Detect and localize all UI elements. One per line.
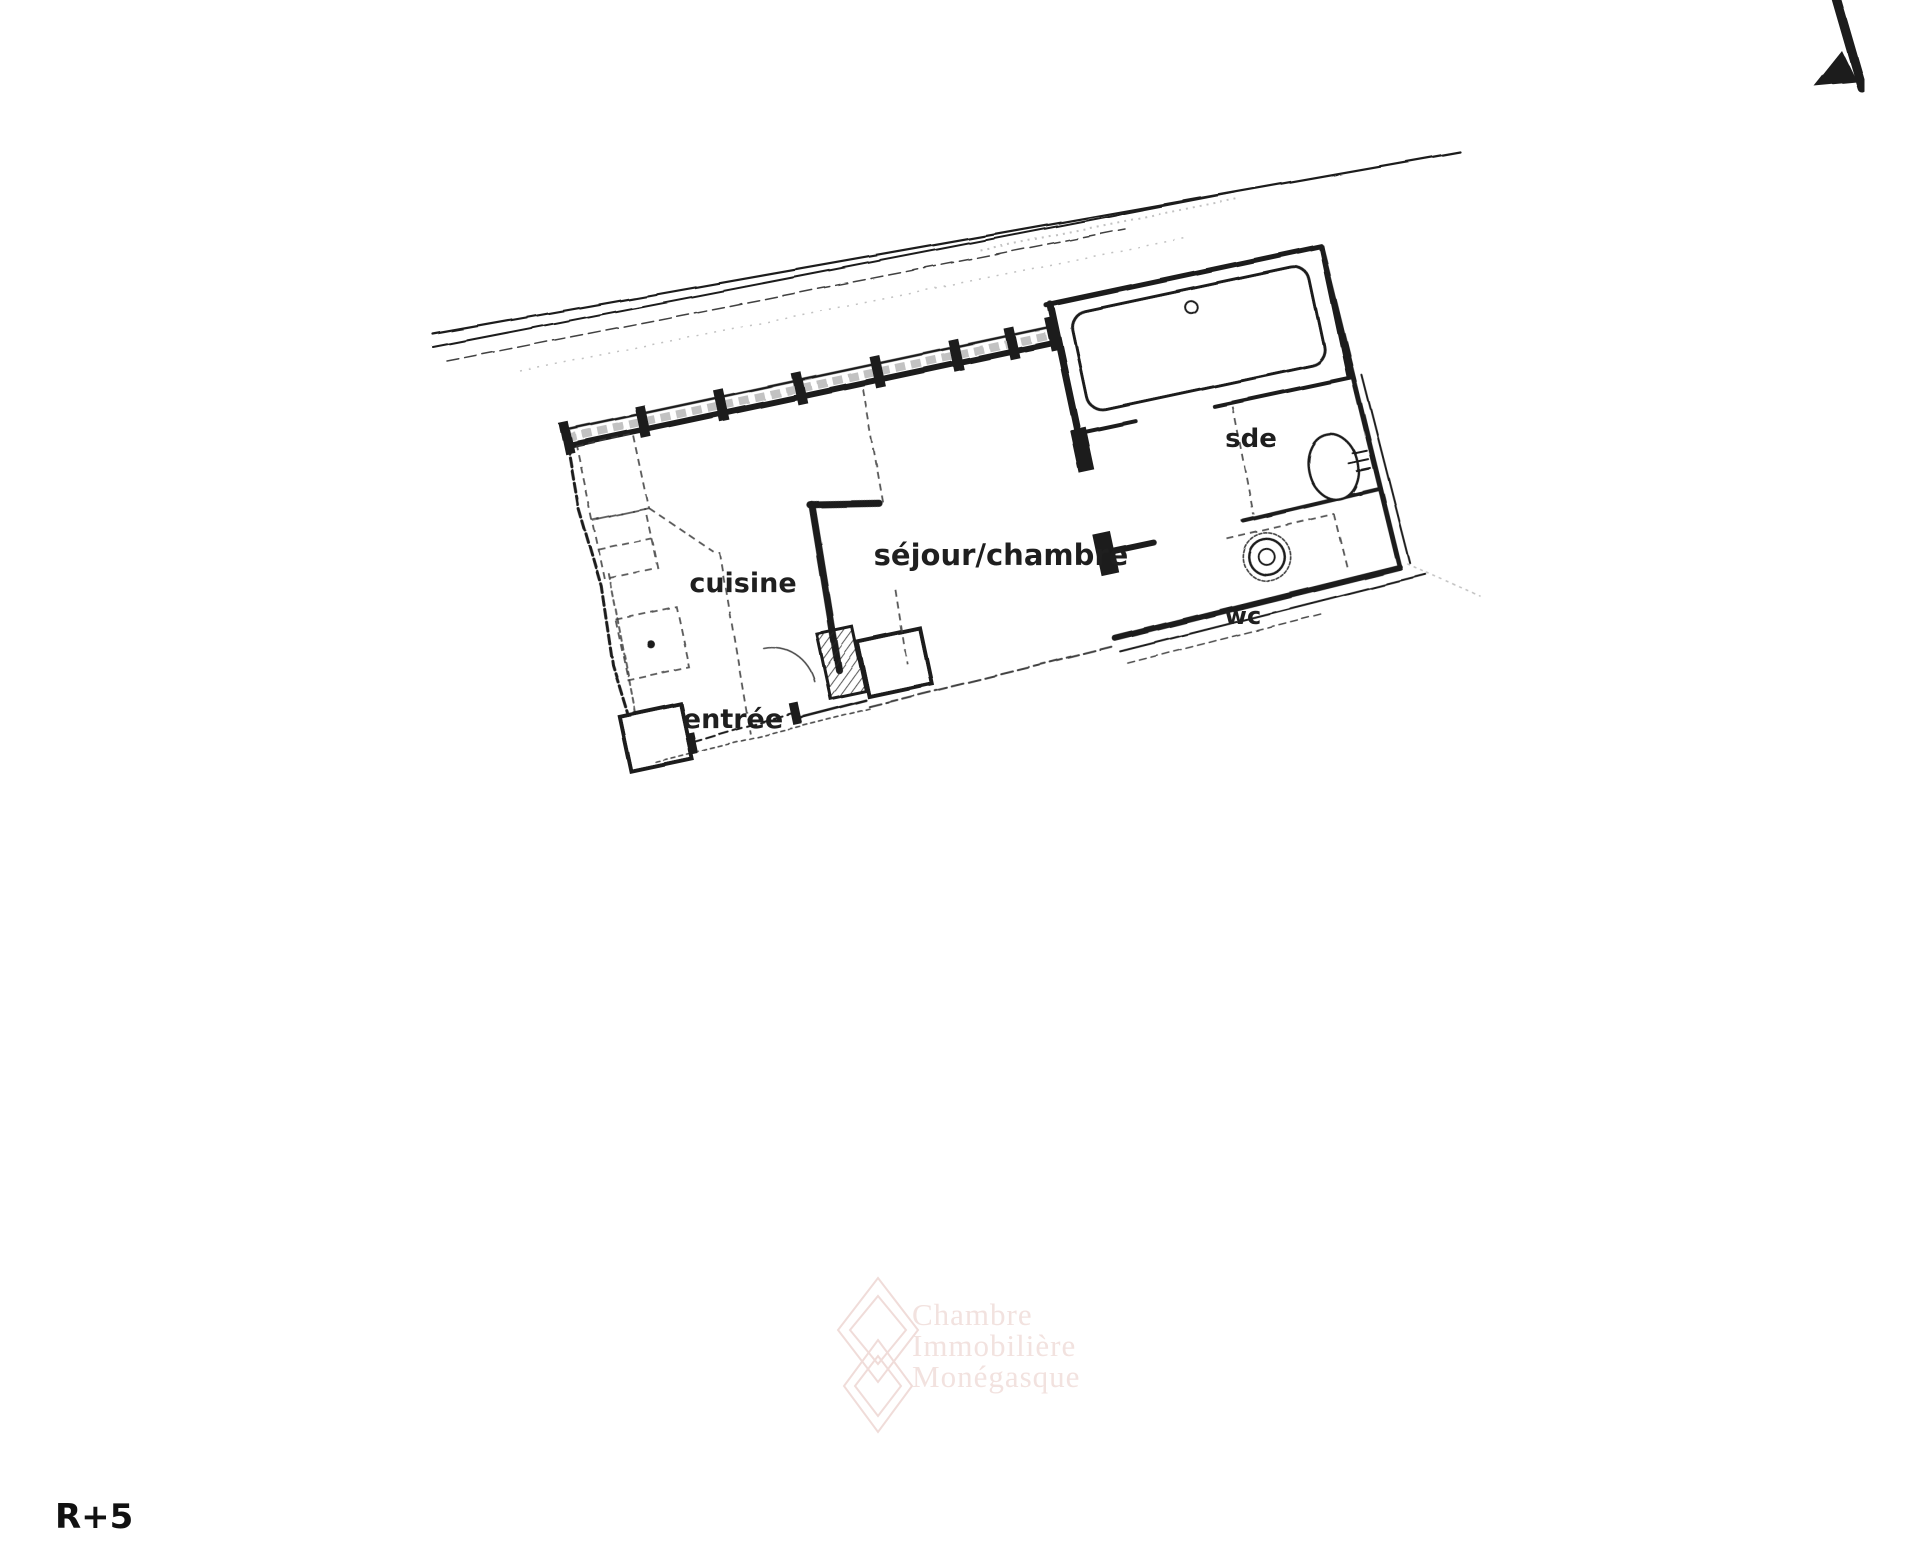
toilet-icon: [1238, 528, 1295, 585]
watermark: Chambre Immobilière Monégasque: [838, 1278, 1080, 1432]
sejour-dashed-lines: [849, 389, 920, 664]
floor-indicator: R+5: [55, 1497, 133, 1537]
watermark-line-1: Chambre: [912, 1297, 1033, 1332]
window-wall: [558, 316, 1062, 455]
north-arrow-icon: [1814, 0, 1862, 88]
shaft-hatched: [817, 627, 866, 699]
adjacent-structure-lines: [1115, 551, 1480, 671]
room-label-wc: wc: [1225, 602, 1261, 630]
room-label-cuisine: cuisine: [689, 568, 796, 599]
kitchen-sink-dot: [647, 640, 656, 649]
floorplan-svg: cuisine séjour/chambre entrée sde wc Cha…: [0, 0, 1920, 1543]
room-label-entree: entrée: [683, 704, 783, 735]
diamond-logo-icon: [838, 1278, 918, 1432]
apartment-plan: [555, 230, 1480, 776]
scanned-floorplan-page: cuisine séjour/chambre entrée sde wc Cha…: [0, 0, 1920, 1543]
room-label-sejour-chambre: séjour/chambre: [874, 538, 1129, 572]
room-label-sde: sde: [1225, 424, 1277, 454]
watermark-line-2: Immobilière: [912, 1328, 1076, 1363]
entry-closet: [857, 629, 931, 697]
watermark-line-3: Monégasque: [912, 1359, 1080, 1394]
